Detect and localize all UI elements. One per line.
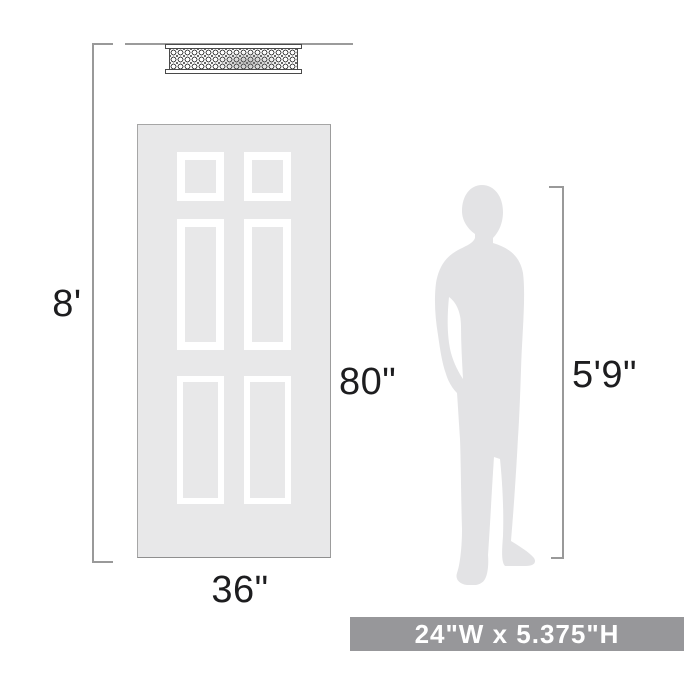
door-height-label: 80" [339, 363, 396, 401]
person-height-label: 5'9" [572, 356, 637, 394]
fixture-mesh-body [169, 48, 298, 70]
door-panel [177, 219, 224, 350]
flush-mount-light-icon [165, 44, 302, 75]
door-panel [244, 219, 291, 350]
person-height-top-tick [549, 186, 564, 188]
door-panel [244, 376, 291, 504]
person-silhouette [418, 185, 545, 585]
person-height-dimension-line [562, 186, 564, 559]
door-panel [177, 376, 224, 504]
door-width-label: 36" [190, 571, 290, 609]
door-illustration [137, 124, 331, 558]
fixture-bottom-rim [165, 69, 302, 74]
ceiling-height-dimension-line [92, 44, 94, 563]
person-height-bottom-tick [551, 557, 564, 559]
scale-diagram: 8' 80" 36" 5'9" 24"W x 5.375"H [0, 0, 700, 700]
ceiling-height-label: 8' [48, 285, 86, 323]
door-panel [177, 152, 224, 201]
dimensions-banner-text: 24"W x 5.375"H [415, 619, 620, 650]
door-panel [244, 152, 291, 201]
ceiling-height-bottom-tick [92, 561, 113, 563]
dimensions-banner: 24"W x 5.375"H [350, 617, 684, 651]
ceiling-height-top-tick [92, 43, 113, 45]
